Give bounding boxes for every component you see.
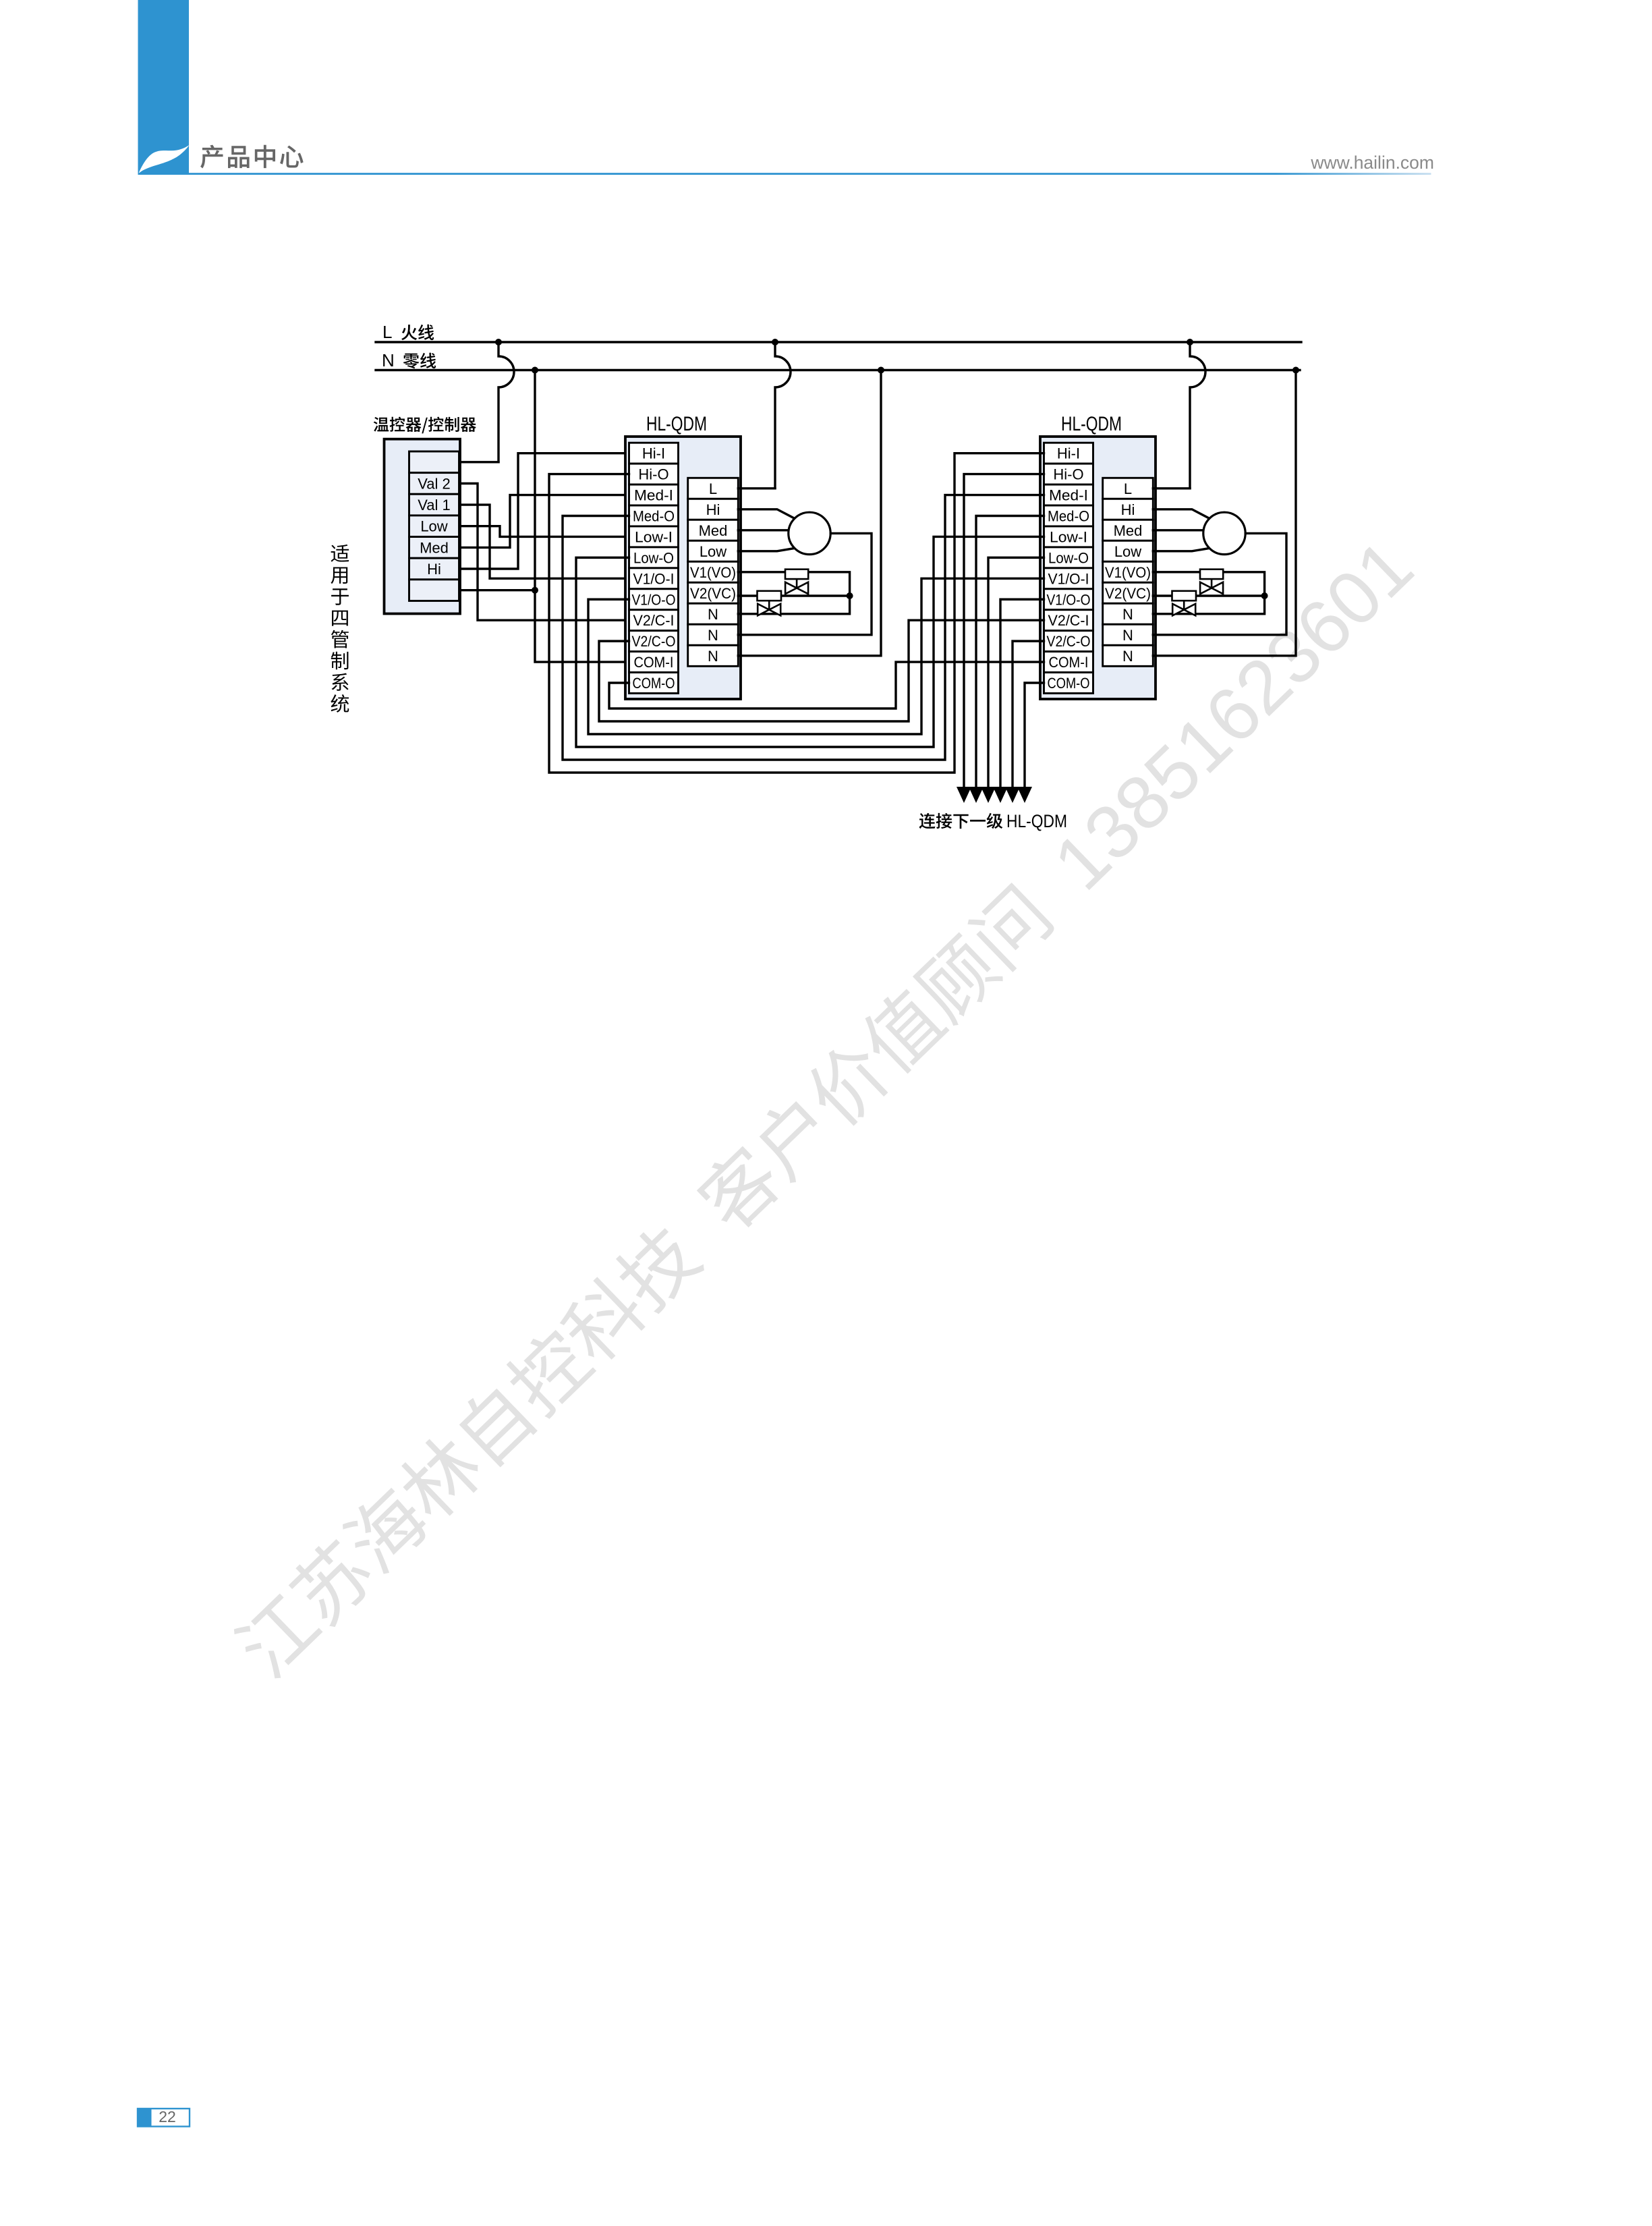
svg-text:V2/C-O: V2/C-O <box>1047 633 1091 650</box>
svg-text:N: N <box>708 627 718 644</box>
svg-text:Low: Low <box>700 543 727 560</box>
svg-text:Hi-O: Hi-O <box>638 466 668 483</box>
svg-text:Hi: Hi <box>1121 501 1135 518</box>
svg-text:V2(VC): V2(VC) <box>1105 585 1151 602</box>
svg-text:N: N <box>382 350 395 370</box>
svg-text:Val 1: Val 1 <box>418 497 451 513</box>
svg-text:N: N <box>1122 648 1133 665</box>
svg-text:V1/O-O: V1/O-O <box>632 591 676 608</box>
svg-text:HL-QDM: HL-QDM <box>1006 811 1067 831</box>
svg-text:V1/O-I: V1/O-I <box>1048 570 1089 587</box>
svg-text:HL-QDM: HL-QDM <box>1061 413 1122 435</box>
svg-text:Hi: Hi <box>706 501 720 518</box>
svg-text:Hi-I: Hi-I <box>642 445 665 462</box>
svg-text:N: N <box>1122 606 1133 623</box>
svg-text:V2/C-O: V2/C-O <box>632 633 676 650</box>
svg-text:L: L <box>382 322 392 342</box>
svg-text:Low-O: Low-O <box>1048 549 1089 566</box>
svg-text:L: L <box>1124 480 1132 497</box>
svg-text:N: N <box>708 648 718 665</box>
svg-text:Hi-I: Hi-I <box>1057 445 1080 462</box>
svg-text:Med-O: Med-O <box>633 507 675 524</box>
svg-text:V2(VC): V2(VC) <box>690 585 736 602</box>
svg-text:V2/C-I: V2/C-I <box>633 612 675 629</box>
svg-text:Med-O: Med-O <box>1048 507 1089 524</box>
svg-text:Med: Med <box>699 522 728 539</box>
svg-text:V1/O-I: V1/O-I <box>633 570 675 587</box>
svg-text:Low: Low <box>1114 543 1141 560</box>
svg-text:V2/C-I: V2/C-I <box>1048 612 1089 629</box>
svg-text:Med: Med <box>420 539 449 556</box>
svg-text:COM-I: COM-I <box>1049 654 1089 671</box>
svg-text:COM-I: COM-I <box>634 654 674 671</box>
svg-text:Low-I: Low-I <box>1050 528 1087 545</box>
svg-text:Med-I: Med-I <box>1049 487 1088 504</box>
svg-text:L: L <box>709 480 717 497</box>
svg-text:Hi-O: Hi-O <box>1053 466 1083 483</box>
svg-text:HL-QDM: HL-QDM <box>646 413 707 435</box>
svg-text:Low: Low <box>420 518 447 535</box>
svg-text:COM-O: COM-O <box>1048 675 1090 692</box>
svg-text:V1(VO): V1(VO) <box>690 564 736 581</box>
svg-text:Val 2: Val 2 <box>418 475 451 492</box>
svg-text:22: 22 <box>159 2108 176 2125</box>
svg-text:V1(VO): V1(VO) <box>1105 564 1151 581</box>
svg-text:N: N <box>1122 627 1133 644</box>
svg-text:Med: Med <box>1114 522 1143 539</box>
svg-text:Low-O: Low-O <box>633 549 674 566</box>
svg-text:Hi: Hi <box>427 561 441 578</box>
svg-text:N: N <box>708 606 718 623</box>
svg-text:COM-O: COM-O <box>633 675 675 692</box>
svg-text:Med-I: Med-I <box>634 487 673 504</box>
svg-text:Low-I: Low-I <box>635 528 673 545</box>
svg-text:V1/O-O: V1/O-O <box>1047 591 1091 608</box>
svg-text:www.hailin.com: www.hailin.com <box>1310 152 1434 173</box>
